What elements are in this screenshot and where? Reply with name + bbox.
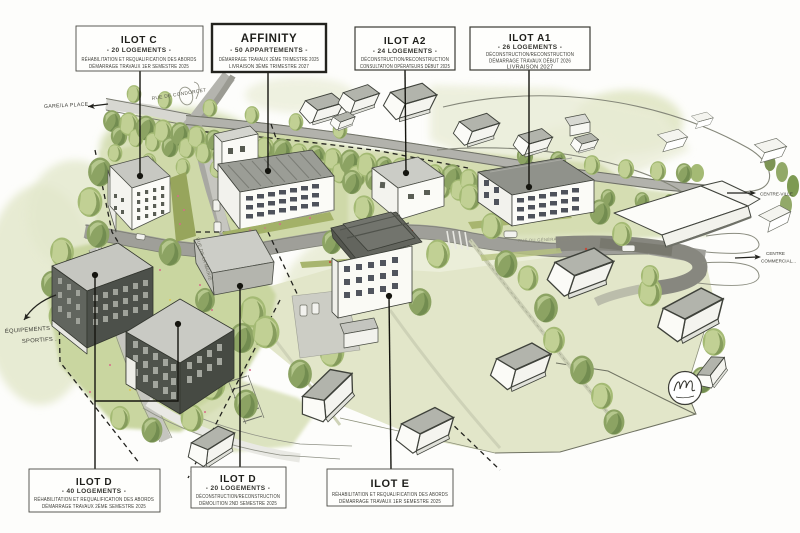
- svg-text:LIVRAISON 3ÈME TRIMESTRE 2027: LIVRAISON 3ÈME TRIMESTRE 2027: [229, 63, 309, 70]
- svg-text:RÉHABILITATION ET REQUALIFICAT: RÉHABILITATION ET REQUALIFICATION DES AB…: [332, 491, 448, 498]
- svg-text:COMMERCIAL...: COMMERCIAL...: [761, 259, 796, 264]
- svg-text:- 20 LOGEMENTS -: - 20 LOGEMENTS -: [206, 485, 271, 492]
- svg-text:GARE/LA PLACE: GARE/LA PLACE: [44, 102, 89, 110]
- svg-text:DÉCONSTRUCTION/RECONSTRUCTION: DÉCONSTRUCTION/RECONSTRUCTION: [486, 51, 574, 58]
- svg-text:DÉMARRAGE TRAVAUX 1ER SEMESTRE: DÉMARRAGE TRAVAUX 1ER SEMESTRE 2025: [339, 498, 441, 505]
- svg-text:AFFINITY: AFFINITY: [241, 33, 298, 45]
- svg-text:ILOT A2: ILOT A2: [384, 36, 426, 47]
- svg-text:CENTRE: CENTRE: [766, 251, 785, 256]
- svg-text:- 24 LOGEMENTS -: - 24 LOGEMENTS -: [373, 48, 438, 55]
- svg-text:ILOT A1: ILOT A1: [509, 33, 551, 44]
- svg-text:ILOT E: ILOT E: [370, 478, 409, 490]
- svg-text:ILOT D: ILOT D: [76, 477, 112, 488]
- svg-text:RÉHABILITATION ET REQUALIFICAT: RÉHABILITATION ET REQUALIFICATION DES AB…: [34, 496, 154, 503]
- svg-text:- 20 LOGEMENTS -: - 20 LOGEMENTS -: [107, 47, 172, 54]
- svg-text:ILOT C: ILOT C: [121, 35, 157, 46]
- svg-text:DÉMOLITION 2ND SEMESTRE 2025: DÉMOLITION 2ND SEMESTRE 2025: [199, 500, 277, 507]
- svg-text:DÉMARRAGE TRAVAUX 2ÈME TRIMEST: DÉMARRAGE TRAVAUX 2ÈME TRIMESTRE 2025: [219, 56, 319, 63]
- svg-text:CENTRE-VILLE: CENTRE-VILLE: [760, 192, 793, 197]
- svg-text:DÉCONSTRUCTION/RECONSTRUCTION: DÉCONSTRUCTION/RECONSTRUCTION: [361, 56, 449, 63]
- svg-text:RÉHABILITATION ET REQUALIFICAT: RÉHABILITATION ET REQUALIFICATION DES AB…: [82, 56, 197, 63]
- svg-text:DÉMARRAGE TRAVAUX DÉBUT 2026: DÉMARRAGE TRAVAUX DÉBUT 2026: [489, 58, 571, 65]
- svg-text:DÉMARRAGE TRAVAUX 1ER SEMESTRE: DÉMARRAGE TRAVAUX 1ER SEMESTRE 2025: [89, 63, 189, 70]
- svg-text:DÉMARRAGE TRAVAUX 2ÈME SEMESTR: DÉMARRAGE TRAVAUX 2ÈME SEMESTRE 2025: [42, 503, 146, 510]
- svg-text:DÉCONSTRUCTION/RECONSTRUCTION: DÉCONSTRUCTION/RECONSTRUCTION: [196, 493, 280, 500]
- svg-text:- 40 LOGEMENTS -: - 40 LOGEMENTS -: [62, 488, 127, 495]
- svg-text:- 50 APPARTEMENTS -: - 50 APPARTEMENTS -: [230, 47, 308, 54]
- svg-text:ILOT D: ILOT D: [220, 474, 256, 485]
- svg-text:LIVRAISON 2027: LIVRAISON 2027: [507, 65, 554, 71]
- svg-text:CONSULTATION OPÉRATEURS DÉBUT: CONSULTATION OPÉRATEURS DÉBUT 2025: [360, 63, 450, 70]
- svg-text:- 26 LOGEMENTS -: - 26 LOGEMENTS -: [498, 44, 563, 51]
